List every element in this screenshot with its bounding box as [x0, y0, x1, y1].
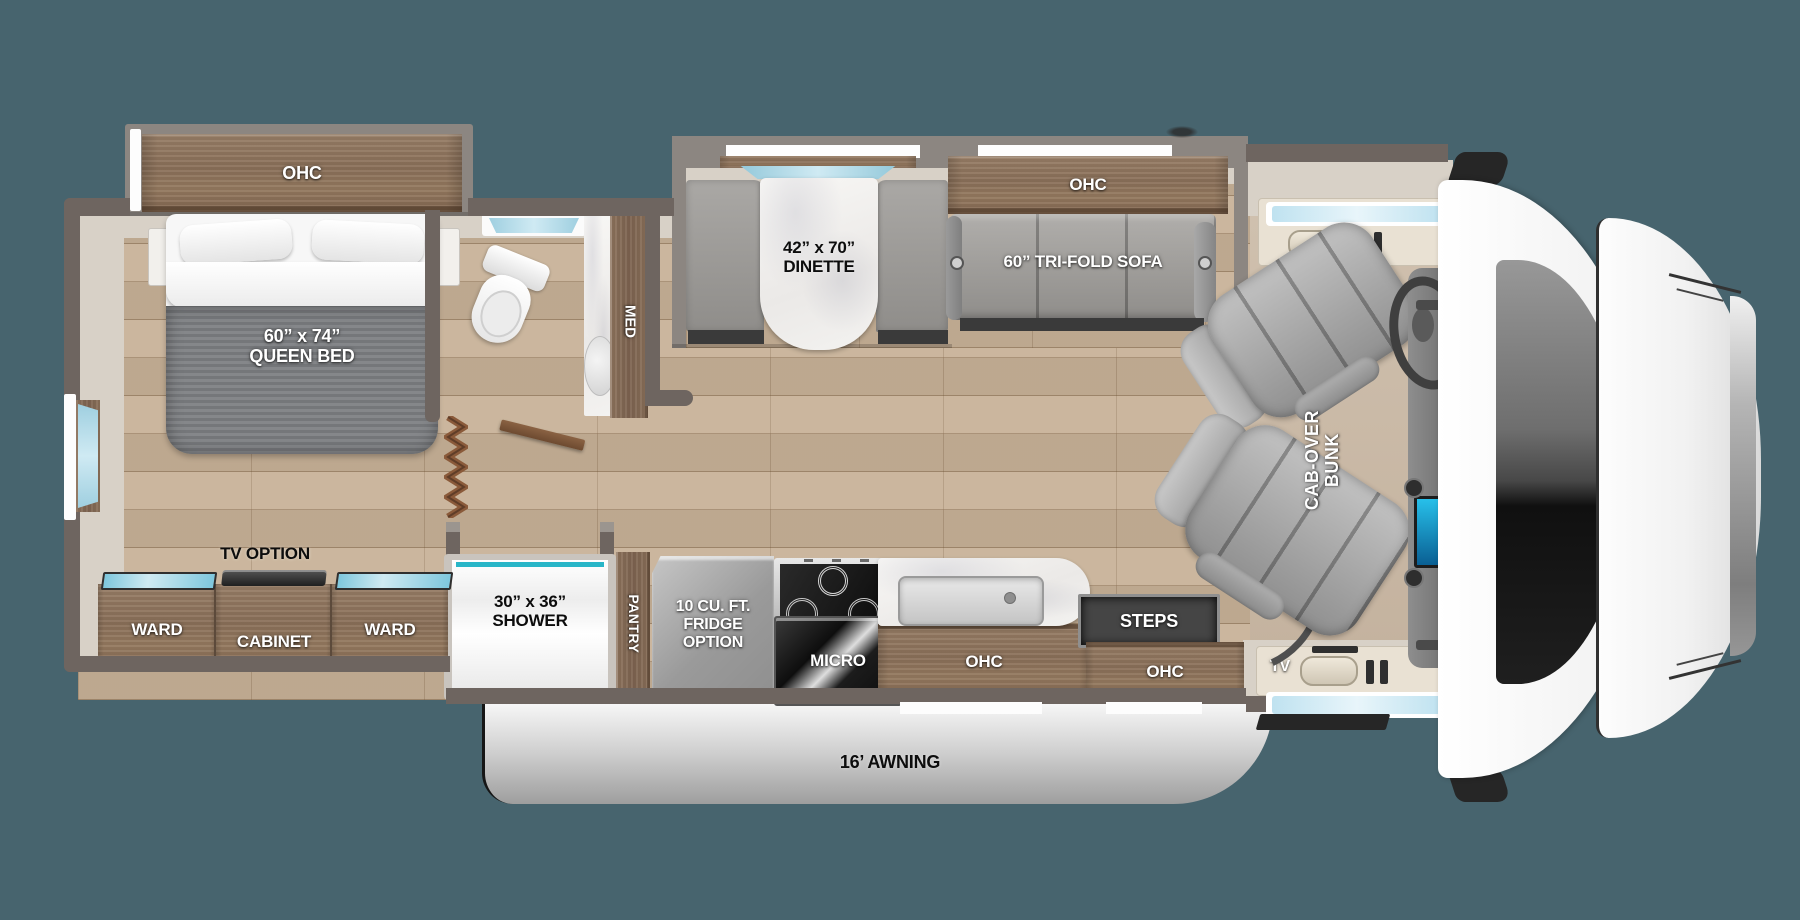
- rear-window-frame: [64, 394, 76, 520]
- ward-right-label: WARD: [332, 620, 448, 639]
- shower-name: SHOWER: [452, 611, 608, 630]
- bottom-window-cutout-2: [1106, 702, 1202, 714]
- cooktop-knob-1: [804, 559, 813, 562]
- dinette-label: 42” x 70” DINETTE: [760, 238, 878, 276]
- sofa-ohc-label: OHC: [1069, 175, 1106, 194]
- queen-bed-label: 60” x 74” QUEEN BED: [166, 326, 438, 366]
- sofa-ohc: OHC: [948, 156, 1228, 214]
- cooktop-knob-2: [832, 559, 841, 562]
- kitchen-ohc-label: OHC: [878, 652, 1090, 671]
- dinette-bench-left-base: [688, 330, 764, 344]
- entry-door-hinge-2: [1380, 660, 1388, 684]
- entry-awning-case: [1256, 714, 1391, 730]
- awning-label: 16’ AWNING: [640, 752, 1140, 772]
- bottom-wall-bedroom: [64, 656, 450, 672]
- roof-antenna: [1166, 126, 1198, 138]
- burner-top: [818, 566, 848, 596]
- steering-hub: [1412, 308, 1434, 342]
- fridge-label: 10 CU. FT. FRIDGE OPTION: [652, 598, 774, 652]
- sofa-label: 60” TRI-FOLD SOFA: [950, 252, 1216, 271]
- kitchen-sink: [898, 576, 1044, 626]
- shower-label: 30” x 36” SHOWER: [452, 592, 608, 630]
- cabinet-label: CABINET: [216, 632, 332, 651]
- rear-window-glass: [78, 404, 98, 508]
- dinette-size: 42” x 70”: [760, 238, 878, 257]
- fridge-line2: FRIDGE: [652, 616, 774, 634]
- bath-wall-left: [425, 210, 440, 422]
- bedroom-slide-window: [130, 129, 141, 211]
- tv-on-cabinet: [221, 570, 327, 586]
- cab-over-bunk-text: CAB-OVER BUNK: [1302, 410, 1342, 510]
- shower-size: 30” x 36”: [452, 592, 608, 611]
- pantry-label: PANTRY: [625, 561, 641, 687]
- dinette-bench-left: [686, 180, 764, 332]
- console-knob-1: [1404, 478, 1424, 498]
- bath-window-glass: [489, 218, 579, 233]
- rv-floorplan-canvas: 16’ AWNING OHC 60” x 74” QUEEN BED MED: [0, 0, 1800, 920]
- tv-option-label: TV OPTION: [150, 544, 380, 563]
- top-wall-cab: [1246, 144, 1448, 162]
- fridge-line3: OPTION: [652, 634, 774, 652]
- fridge-line1: 10 CU. FT.: [652, 598, 774, 616]
- entry-door-hinge-1: [1366, 660, 1374, 684]
- dinette-name: DINETTE: [760, 257, 878, 276]
- dinette-bench-right: [876, 180, 948, 332]
- dinette-bench-right-base: [878, 330, 948, 344]
- ward-left-glass-top: [101, 572, 218, 590]
- ward-left-label: WARD: [98, 620, 216, 639]
- med-label: MED: [621, 276, 638, 366]
- pillow-right: [311, 219, 425, 265]
- bunk-line1: CAB-OVER: [1302, 410, 1322, 510]
- queen-bed-name: QUEEN BED: [166, 346, 438, 366]
- top-wall-bath: [468, 198, 674, 216]
- shower-accent-strip: [456, 562, 604, 567]
- bath-wall-right: [645, 210, 660, 406]
- bedroom-ohc: OHC: [142, 134, 462, 212]
- cab-over-bunk-label: CAB-OVER BUNK: [1242, 380, 1402, 540]
- bath-wall-corner: [645, 390, 693, 406]
- cooktop-knob-3: [860, 559, 869, 562]
- living-slideout-wall-left: [672, 136, 686, 348]
- queen-bed-size: 60” x 74”: [166, 326, 438, 346]
- ward-right-glass-top: [335, 572, 454, 590]
- top-wall-bedroom: [64, 198, 130, 216]
- console-knob-2: [1404, 568, 1424, 588]
- accordion-door-icon: [444, 416, 468, 518]
- microwave-label: MICRO: [810, 651, 866, 670]
- duvet-fold: [166, 262, 438, 308]
- chrome-bumper: [1730, 296, 1756, 656]
- bottom-window-cutout-1: [900, 702, 1042, 714]
- bedroom-ohc-label: OHC: [282, 163, 321, 183]
- pillow-left: [179, 218, 294, 266]
- entry-door-window-glass: [1272, 696, 1442, 714]
- sink-drain: [1004, 592, 1016, 604]
- bunk-line2: BUNK: [1322, 410, 1342, 510]
